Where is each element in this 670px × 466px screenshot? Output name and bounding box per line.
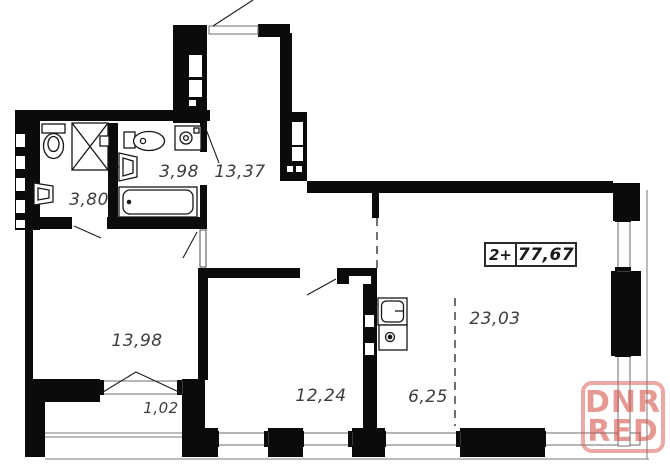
room-area-label-bathroom-2: 3,98 [159,162,199,182]
room-area-label-corridor: 6,25 [408,387,448,407]
total-area: 77,67 [517,244,575,265]
washing-machine-icon [175,126,201,150]
washbasin-icon [124,132,165,151]
door-leaf [200,230,206,267]
toilet-icon [42,124,65,159]
bathtub-icon [119,187,197,217]
watermark-line-1: DNR [585,388,661,417]
room-area-label-room-2: 12,24 [295,386,346,406]
watermark: DNR RED [581,381,665,453]
room-area-label-hallway: 13,37 [214,162,265,182]
room-area-label-bedroom: 13,98 [111,331,162,351]
laundry-sink-icon [115,153,137,181]
rooms-count: 2+ [486,244,517,265]
room-area-label-living-kitchen: 23,03 [469,309,520,329]
apartment-info-box: 2+ 77,67 [484,242,577,267]
room-area-label-bathroom-1: 3,80 [69,190,109,210]
facade-line [45,190,649,459]
shower-icon [72,123,109,170]
watermark-line-2: RED [587,417,659,446]
floor-plan: 3,80 3,98 13,37 13,98 1,02 12,24 6,25 23… [0,0,670,466]
room-area-label-balcony: 1,02 [143,399,178,417]
kitchen-sink-icon [378,298,407,350]
sink-icon [30,183,53,205]
